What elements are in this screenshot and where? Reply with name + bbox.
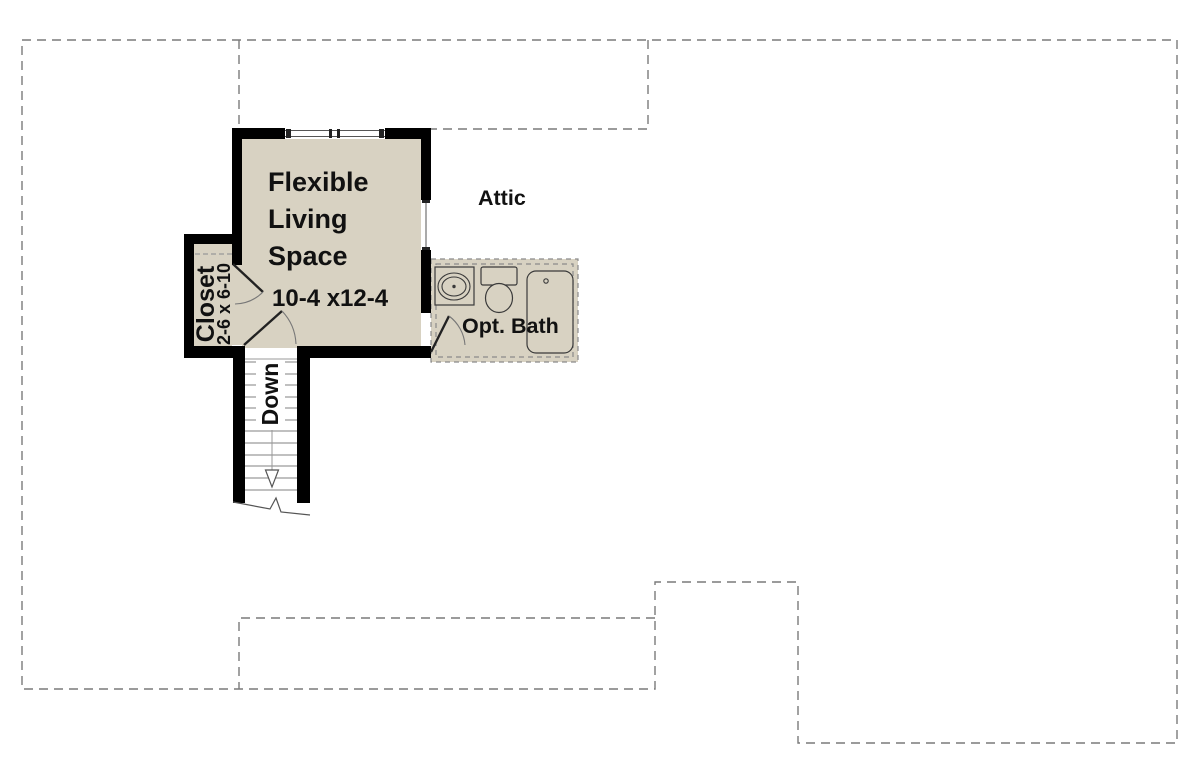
window-right: [421, 200, 431, 250]
floor-plan-canvas: Flexible Living Space 10-4 x12-4 Attic O…: [0, 0, 1200, 784]
window-top-opening: [285, 128, 385, 139]
stair-wall-right: [297, 352, 310, 503]
window-right-bottom-cap: [422, 247, 430, 250]
toilet-tank: [481, 267, 517, 285]
attic-roofline-bottom: [239, 618, 655, 689]
attic-label: Attic: [478, 186, 526, 210]
room-dimensions-label: 10-4 x12-4: [272, 285, 389, 312]
sink-drain: [452, 285, 455, 288]
window-top-left-cap: [286, 129, 291, 138]
stair-wall-left: [233, 352, 245, 503]
wall-right-upper: [421, 128, 431, 200]
attic-boundary-outline: [22, 40, 1177, 743]
room-label-line3: Space: [268, 241, 348, 271]
wall-left: [232, 128, 242, 265]
window-right-top-cap: [422, 200, 430, 203]
room-label-line2: Living: [268, 204, 348, 234]
closet-dimensions-label: 2-6 x 6-10: [214, 263, 234, 345]
window-top-mullion-right: [337, 129, 340, 138]
wall-right-middle: [421, 250, 431, 313]
floor-plan: Flexible Living Space 10-4 x12-4 Attic O…: [0, 0, 1200, 784]
bathtub: [527, 271, 573, 353]
wall-bottom-right-segment: [297, 346, 431, 358]
window-top: [285, 128, 385, 139]
attic-roofline-top-right: [431, 40, 648, 129]
room-label-line1: Flexible: [268, 167, 369, 197]
down-label: Down: [257, 363, 283, 426]
opt-bath-label: Opt. Bath: [462, 314, 559, 338]
window-top-right-cap: [379, 129, 384, 138]
window-top-mullion-left: [329, 129, 332, 138]
toilet-bowl: [486, 284, 513, 313]
